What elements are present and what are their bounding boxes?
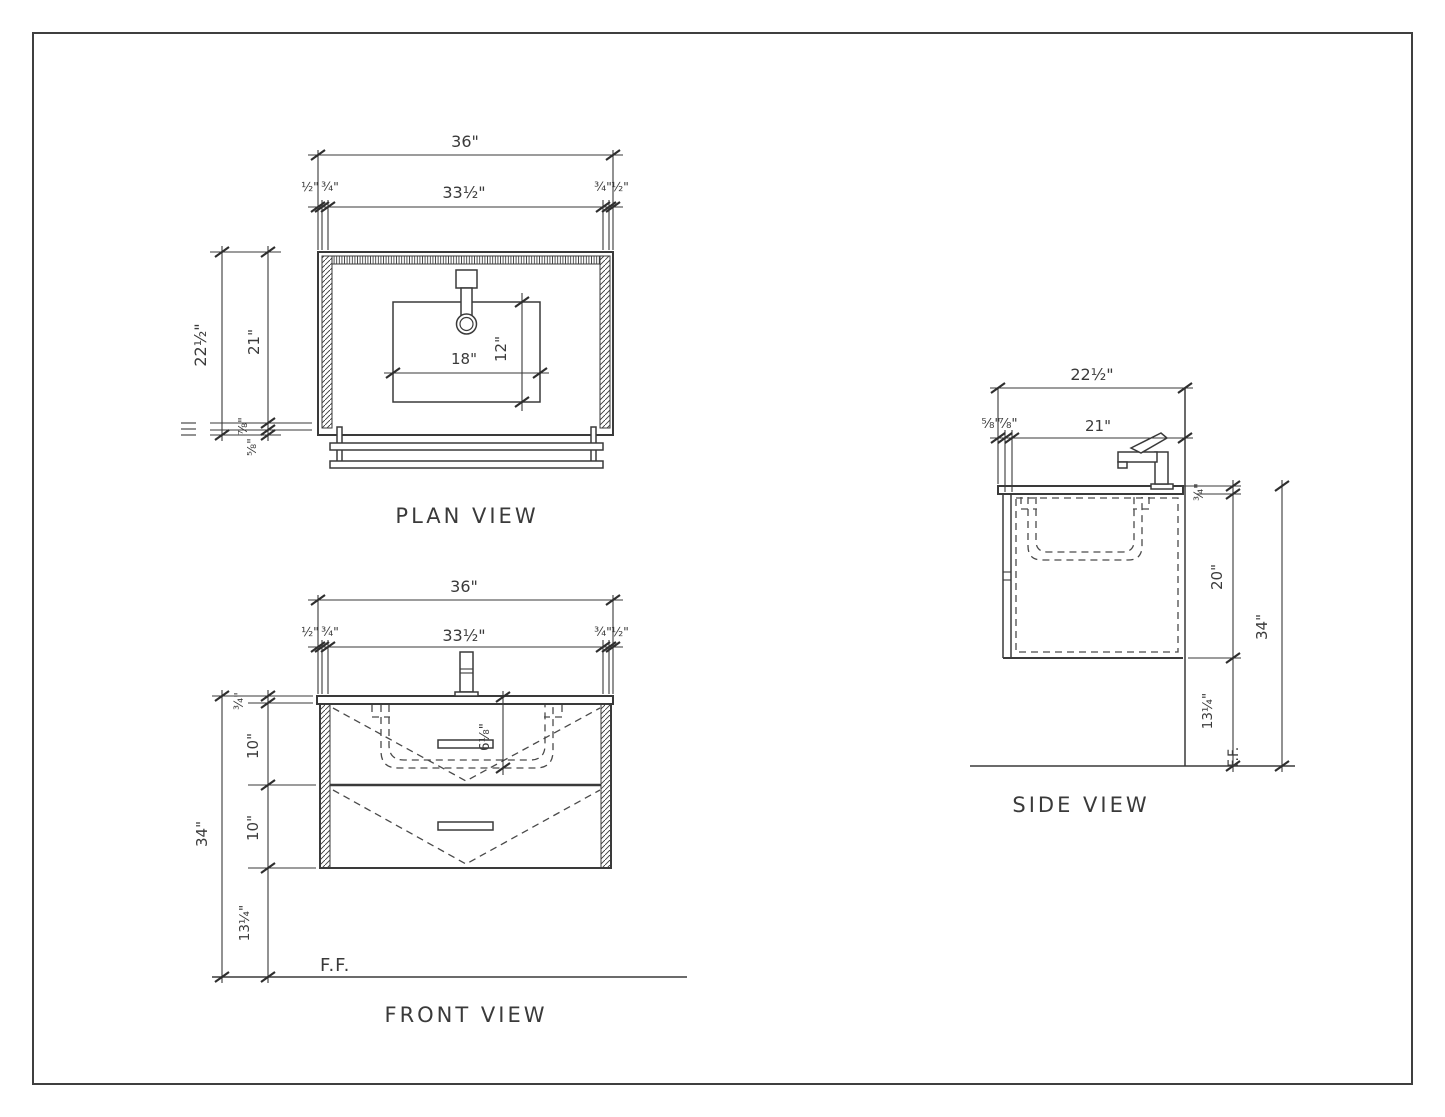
side-dim-cabinet-height: 20" [1208,564,1226,590]
plan-dim-reveal-left: ½" [301,179,319,194]
front-dim-mounting-height: 13¼" [237,905,253,941]
side-faucet [1118,433,1173,489]
front-dim-overall-width: 36" [450,577,478,596]
side-view-title: SIDE VIEW [1012,793,1149,817]
front-dim-reveal-right: ½" [611,624,629,639]
plan-dim-inner-width: 33½" [442,183,485,202]
front-dim-panel-right: ¾" [594,624,612,639]
side-dimension-lines [970,383,1295,772]
plan-dim-sink-width: 18" [451,350,477,368]
plan-dim-overall-width: 36" [451,132,479,151]
front-finished-floor-label: F.F. [320,955,350,976]
plan-dim-front-reveal: ⅝" [244,438,259,456]
front-dim-countertop-thickness: ¾" [231,692,246,710]
front-faucet [455,652,478,696]
plan-left-panel-hatch [322,256,332,428]
side-dimension-labels: 22½" ⅝" ⅞" 21" ¾" 20" 13¼" 34" F.F. [981,365,1271,767]
front-drawer2-handle [438,822,493,830]
front-dim-drawer1-height: 10" [244,733,262,759]
front-right-panel-hatch [601,704,611,868]
plan-dim-reveal-right: ½" [611,179,629,194]
plan-dim-sink-depth: 12" [492,336,510,362]
plan-dim-panel-left: ¾" [321,179,339,194]
front-dim-overall-height: 34" [193,821,211,847]
side-dim-mounting-height: 13¼" [1200,693,1216,729]
front-view-title: FRONT VIEW [384,1003,547,1027]
front-dim-sink-depth: 6⅛" [477,723,493,751]
front-dim-panel-left: ¾" [321,624,339,639]
front-dim-inner-width: 33½" [442,626,485,645]
front-cabinet [317,652,613,868]
technical-drawing-canvas: 36" ½" ¾" 33½" ¾" ½" 22½" 21" ⅞" ⅝" 18" … [0,0,1445,1117]
side-dim-countertop-thickness: ¾" [1191,483,1206,501]
front-dim-reveal-left: ½" [301,624,319,639]
front-view: 36" ½" ¾" 33½" ¾" ½" ¾" 10" 10" 13¼" 34"… [193,577,687,1027]
plan-back-rail-hatch [332,256,600,264]
front-left-panel-hatch [320,704,330,868]
front-countertop [317,696,613,704]
plan-dim-panel-right: ¾" [594,179,612,194]
side-drawer-hidden-line [1016,498,1178,652]
side-finished-floor-label: F.F. [1226,747,1242,768]
plan-dim-inner-depth: 21" [245,329,263,355]
side-dim-inner-depth: 21" [1085,417,1111,435]
plan-view: 36" ½" ¾" 33½" ¾" ½" 22½" 21" ⅞" ⅝" 18" … [181,132,629,528]
plan-view-title: PLAN VIEW [395,504,538,528]
side-dim-overall-height: 34" [1253,614,1271,640]
side-sink-hidden-lines [1021,497,1149,560]
plan-dim-overall-depth: 22½" [191,323,210,366]
front-dim-drawer2-height: 10" [244,815,262,841]
dimension-ticks [991,383,1289,771]
side-dim-overall-depth: 22½" [1070,365,1113,384]
plan-dim-front-panel: ⅞" [235,417,250,435]
side-view: 22½" ⅝" ⅞" 21" ¾" 20" 13¼" 34" F.F. SIDE… [970,365,1295,817]
side-cabinet [998,388,1185,766]
side-dim-back-panel: ⅞" [998,416,1017,432]
drawing-sheet: 36" ½" ¾" 33½" ¾" ½" 22½" 21" ⅞" ⅝" 18" … [0,0,1445,1117]
plan-right-panel-hatch [600,256,610,428]
